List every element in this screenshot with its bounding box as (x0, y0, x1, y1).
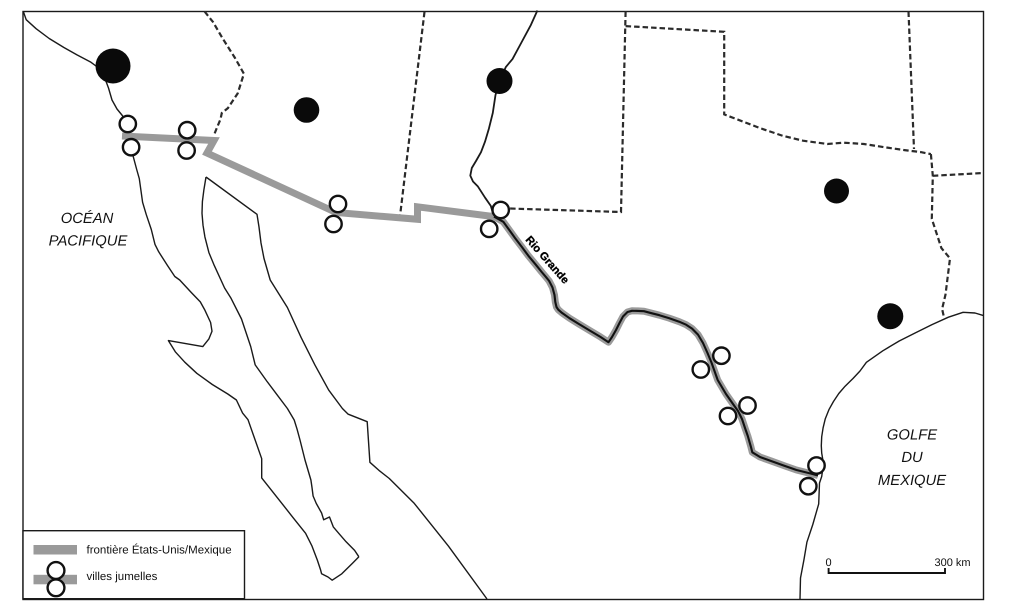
svg-text:PACIFIQUE: PACIFIQUE (49, 234, 128, 250)
svg-text:300 km: 300 km (935, 557, 971, 569)
svg-text:0: 0 (826, 557, 832, 569)
svg-text:OCÉAN: OCÉAN (61, 210, 114, 227)
svg-text:villes jumelles: villes jumelles (87, 571, 158, 583)
svg-text:DU: DU (901, 450, 923, 466)
svg-text:MEXIQUE: MEXIQUE (878, 473, 946, 489)
svg-text:GOLFE: GOLFE (887, 428, 937, 444)
svg-text:frontière États-Unis/Mexique: frontière États-Unis/Mexique (87, 544, 232, 557)
